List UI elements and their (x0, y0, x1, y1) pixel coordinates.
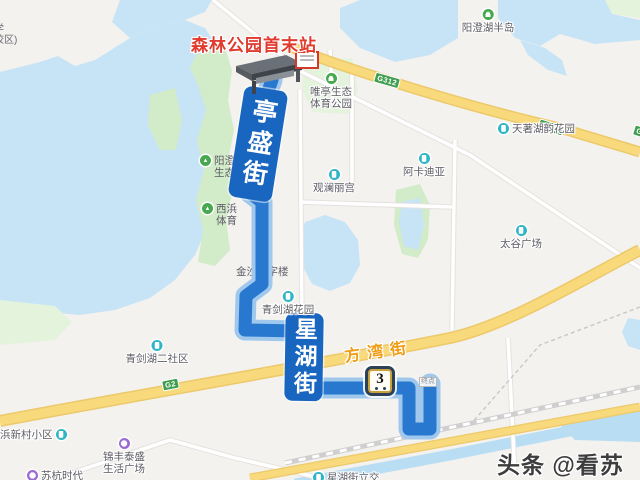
metro-line3-icon[interactable]: 3 (365, 366, 395, 396)
poi-yangchenghu-bandao[interactable]: ▲ 阳澄湖半岛 (462, 9, 515, 34)
building-icon: ▮ (329, 169, 340, 180)
map-screenshot: ▲ 阳澄 生态 ▲ 西浜 体育 金沙写字楼 亭盛街 星湖街 方湾街 G312 G… (0, 0, 640, 480)
mall-icon: ◆ (27, 470, 38, 480)
poi-weiting-park[interactable]: ▲ 唯亭生态 体育公园 (310, 73, 352, 110)
building-icon: ▮ (498, 123, 509, 134)
station-name-label[interactable]: 森林公园首末站 (191, 31, 317, 56)
poi-qingjianhu-community2[interactable]: ▮ 青剑湖二社区 (126, 340, 189, 365)
poi-akadiya[interactable]: ▮ 阿卡迪亚 (403, 153, 445, 178)
building-icon: ▮ (313, 472, 324, 480)
building-icon: ▮ (419, 153, 430, 164)
park-icon: ▲ (326, 73, 337, 84)
poi-taigu-plaza[interactable]: ▮ 太谷广场 (500, 225, 542, 250)
poi-xinghu-interchange[interactable]: ▮ 星湖街立交 (313, 472, 380, 480)
poi-suhang-times[interactable]: ◆ 苏杭时代 (27, 470, 83, 480)
building-icon: ▮ (516, 225, 527, 236)
route-layer (0, 0, 640, 480)
poi-tianzhu-huyun[interactable]: ▮ 天著湖韵花园 (498, 123, 575, 136)
poi-qingjianhu-garden[interactable]: ▮ 青剑湖花园 (262, 291, 315, 316)
route-terminus-label: 终点 (419, 377, 437, 387)
route-street-xinghu[interactable]: 星湖街 (284, 313, 324, 402)
poi-guanlan-ligong[interactable]: ▮ 观澜丽宫 (313, 169, 355, 194)
building-icon: ▮ (56, 429, 67, 440)
park-icon: ▲ (483, 9, 494, 20)
watermark: 头条 @看苏州 (497, 446, 640, 480)
building-icon: ▮ (152, 340, 163, 351)
corner-partial-label: 学 校区) (0, 24, 17, 46)
metro-train-base (375, 387, 386, 390)
mall-icon: ◆ (119, 438, 130, 449)
poi-bangxincun[interactable]: 浜新村小区 ▮ (0, 429, 67, 442)
building-icon: ▮ (283, 291, 294, 302)
poi-jinfeng-taisheng[interactable]: ◆ 锦丰泰盛 生活广场 (103, 438, 145, 475)
